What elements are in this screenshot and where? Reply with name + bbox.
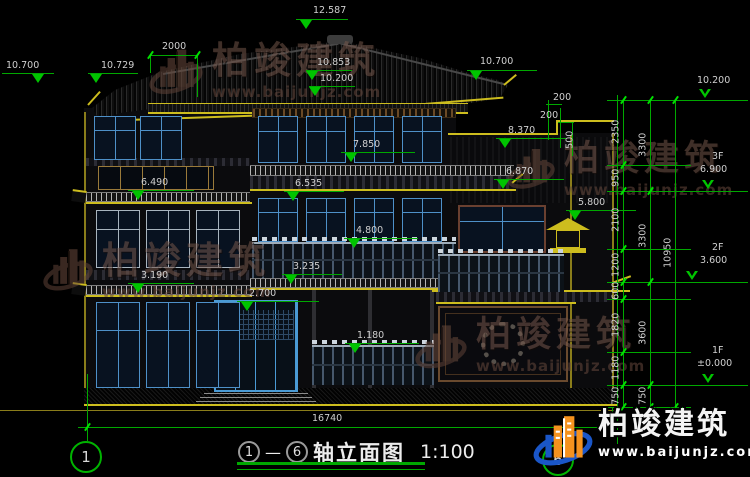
axis-bubble-1: 1 (70, 441, 102, 473)
window (94, 116, 136, 160)
window (258, 198, 298, 242)
elevation-label: 2.700 (249, 289, 276, 299)
chain-line (675, 100, 676, 407)
elevation-label: 8.370 (508, 126, 535, 136)
window (458, 205, 546, 253)
floor-level-label: 6.900 (700, 165, 727, 175)
dim-label: 200 (540, 111, 558, 121)
parapet-coping (448, 133, 558, 135)
brand-logo-icon (42, 242, 94, 298)
brand-url: www.baijunjz.com (598, 445, 750, 460)
brand-name: 柏竣建筑 (598, 410, 750, 440)
extension-line (197, 55, 198, 97)
chain-tick (607, 100, 748, 101)
chain-dim-label: 2350 (611, 110, 621, 154)
watermark-brand-url: www.baijunjz.com (102, 283, 271, 301)
window (196, 302, 240, 388)
title-underline-thick (237, 462, 425, 465)
level-triangle (345, 153, 357, 162)
dim-label: 500 (565, 118, 575, 162)
floor-level-label: ±0.000 (697, 359, 732, 369)
level-triangle (699, 89, 711, 98)
window (146, 302, 190, 388)
rafter-band-third (250, 165, 514, 176)
window (402, 116, 442, 163)
pavilion-body (556, 230, 580, 248)
floor-level-label: 3.600 (700, 256, 727, 266)
chain-tick (607, 191, 748, 192)
grade-line (0, 410, 620, 411)
ground-line (84, 404, 618, 406)
parapet-step-vertical (556, 122, 558, 135)
elevation-label: 3.235 (293, 262, 320, 272)
floor-tag: 1F (712, 346, 724, 356)
floor-level-label: 10.200 (697, 76, 730, 86)
level-triangle (287, 192, 299, 201)
overall-dim-label: 16740 (312, 414, 342, 424)
dim-label: 200 (553, 93, 571, 103)
chain-line (650, 100, 651, 407)
chain-dim-label: 2100 (611, 198, 621, 242)
elevation-label: 7.850 (353, 140, 380, 150)
window (402, 198, 442, 242)
level-triangle (32, 74, 44, 83)
watermark-brand-name: 柏竣建筑 (102, 242, 271, 279)
floor-tag: 2F (712, 243, 724, 253)
elevation-label: 10.700 (6, 61, 39, 71)
plinth-hatch (84, 388, 618, 404)
chain-dim-label: 3300 (638, 214, 648, 258)
level-triangle (348, 239, 360, 248)
title-dash: — (265, 443, 281, 462)
title-axis-end: 6 (286, 441, 308, 463)
level-triangle (300, 20, 312, 29)
cad-elevation-drawing: 12.587 10.853 10.200 10.700 10.729 10.70… (0, 0, 750, 477)
elevation-label: 10.729 (101, 61, 134, 71)
elevation-label: 1.180 (357, 331, 384, 341)
level-triangle (686, 271, 698, 280)
chain-dim-label: 950 (611, 156, 621, 200)
extension-line (560, 108, 561, 148)
floor-tag: 3F (712, 152, 724, 162)
extension-line (150, 55, 151, 73)
window (306, 198, 346, 242)
eave-tip-tower-upper (71, 189, 87, 203)
chain-dim-label: 3300 (638, 123, 648, 167)
brand-logo-block: 柏竣建筑 www.baijunjz.com (532, 410, 750, 472)
title-axis-start: 1 (238, 441, 260, 463)
chain-total-label: 10950 (663, 231, 673, 275)
level-triangle (132, 284, 144, 293)
pavilion-roof (546, 218, 590, 230)
elevation-label: 4.800 (356, 226, 383, 236)
watermark-brand-url: www.baijunjz.com (212, 83, 381, 101)
chain-dim-label: 1820 (611, 303, 621, 347)
dim-line (2, 73, 54, 74)
level-triangle (309, 87, 321, 96)
elevation-label: 3.190 (141, 271, 168, 281)
chain-tick (607, 282, 748, 283)
terrace-railing (438, 254, 564, 292)
elevation-label: 10.200 (320, 74, 353, 84)
brand-logo-icon (532, 410, 594, 472)
bracket-band-third (250, 176, 514, 189)
chain-tick (607, 385, 748, 386)
dim-label: 2000 (162, 42, 186, 52)
level-triangle (470, 71, 482, 80)
level-triangle (497, 180, 509, 189)
level-triangle (241, 302, 253, 311)
title-scale: 1:100 (420, 441, 475, 463)
elevation-label: 10.700 (480, 57, 513, 67)
level-triangle (90, 74, 102, 83)
eave-tip-right (503, 74, 517, 86)
level-triangle (499, 139, 511, 148)
level-triangle (702, 180, 714, 189)
level-triangle (285, 275, 297, 284)
eave-line-right-lower (436, 302, 576, 304)
entrance-step (200, 397, 312, 398)
elevation-label: 6.490 (141, 178, 168, 188)
dim-line (150, 55, 198, 56)
elevation-label: 12.587 (313, 6, 346, 16)
title-underline-thin (237, 469, 425, 470)
elevation-label: 10.853 (317, 58, 350, 68)
window (96, 302, 140, 388)
axis-line-1 (87, 374, 88, 441)
level-triangle (306, 71, 318, 80)
elevation-label: 6.870 (506, 167, 533, 177)
chain-dim-label: 3600 (638, 311, 648, 355)
elevation-label: 6.535 (295, 179, 322, 189)
window (258, 116, 298, 163)
brand-logo-icon (414, 318, 468, 376)
level-triangle (132, 191, 144, 200)
chain-line (623, 100, 624, 407)
entrance-step (204, 393, 308, 394)
level-triangle (569, 211, 581, 220)
window (306, 116, 346, 163)
window (140, 116, 182, 160)
entrance-step (196, 401, 316, 402)
watermark-brand-name: 柏竣建筑 (212, 42, 381, 79)
rafter-band-tower-upper (86, 192, 250, 202)
eave-line-tower-upper (86, 202, 252, 204)
level-triangle (349, 344, 361, 353)
bracket-band-right (436, 292, 612, 302)
level-triangle (702, 374, 714, 383)
elevation-label: 5.800 (578, 198, 605, 208)
